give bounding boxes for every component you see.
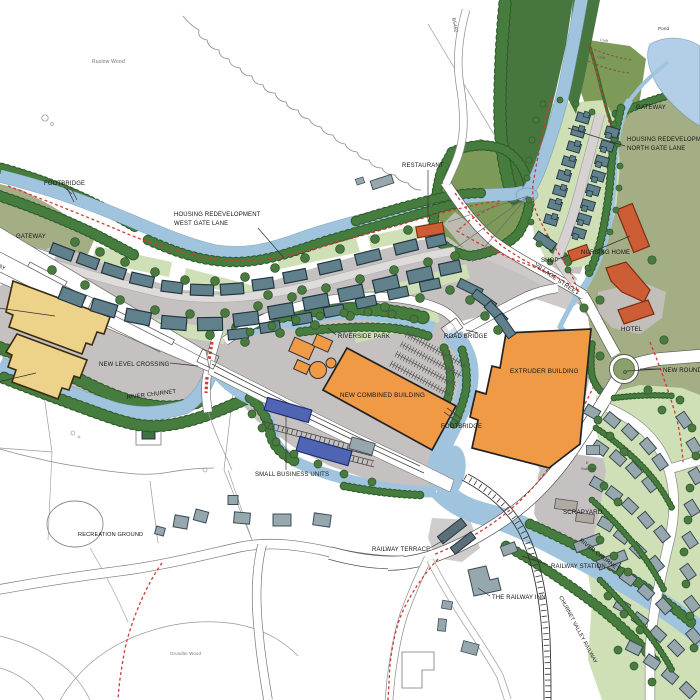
svg-text:RESTAURANT: RESTAURANT xyxy=(402,163,444,169)
svg-text:SMALL BUSINESS UNITS: SMALL BUSINESS UNITS xyxy=(255,472,329,478)
svg-text:ROAD BRIDGE: ROAD BRIDGE xyxy=(444,334,488,340)
svg-text:NEW LEVEL CROSSING: NEW LEVEL CROSSING xyxy=(99,362,170,368)
svg-text:NURSING HOME: NURSING HOME xyxy=(581,250,630,256)
svg-text:HOTEL: HOTEL xyxy=(621,326,643,333)
svg-text:NEW COMBINED BUILDING: NEW COMBINED BUILDING xyxy=(340,392,425,399)
svg-text:RAILWAY TERRACE: RAILWAY TERRACE xyxy=(372,547,430,553)
svg-text:GATEWAY: GATEWAY xyxy=(636,105,666,111)
svg-text:RIVERSIDE PARK: RIVERSIDE PARK xyxy=(338,334,390,340)
svg-text:Grundler Wood: Grundler Wood xyxy=(170,651,201,656)
svg-text:Pond: Pond xyxy=(658,26,669,31)
svg-text:RECREATION GROUND: RECREATION GROUND xyxy=(78,532,143,538)
svg-text:NORTH GATE LANE: NORTH GATE LANE xyxy=(627,146,685,152)
svg-text:Ruslow Wood: Ruslow Wood xyxy=(92,59,125,65)
svg-text:GATEWAY: GATEWAY xyxy=(16,234,46,240)
svg-text:E: E xyxy=(586,460,589,465)
svg-text:SCRAPYARD: SCRAPYARD xyxy=(563,509,603,516)
svg-text:WEST GATE LANE: WEST GATE LANE xyxy=(174,221,228,227)
svg-text:HOUSING REDEVELOPMENT: HOUSING REDEVELOPMENT xyxy=(627,137,700,143)
svg-text:THE RAILWAY INN: THE RAILWAY INN xyxy=(492,595,546,601)
svg-text:FOOTBRIDGE: FOOTBRIDGE xyxy=(441,424,482,430)
svg-text:Sub Sta: Sub Sta xyxy=(581,466,596,471)
svg-text:SHOP: SHOP xyxy=(541,258,559,264)
svg-text:NEW ROUNDABOUT: NEW ROUNDABOUT xyxy=(663,368,700,374)
svg-text:RAILWAY STATION: RAILWAY STATION xyxy=(551,564,606,570)
svg-text:HOUSING REDEVELOPMENT: HOUSING REDEVELOPMENT xyxy=(174,212,261,218)
svg-text:EXTRUDER BUILDING: EXTRUDER BUILDING xyxy=(510,368,579,375)
svg-text:FOOTBRIDGE: FOOTBRIDGE xyxy=(44,181,85,187)
